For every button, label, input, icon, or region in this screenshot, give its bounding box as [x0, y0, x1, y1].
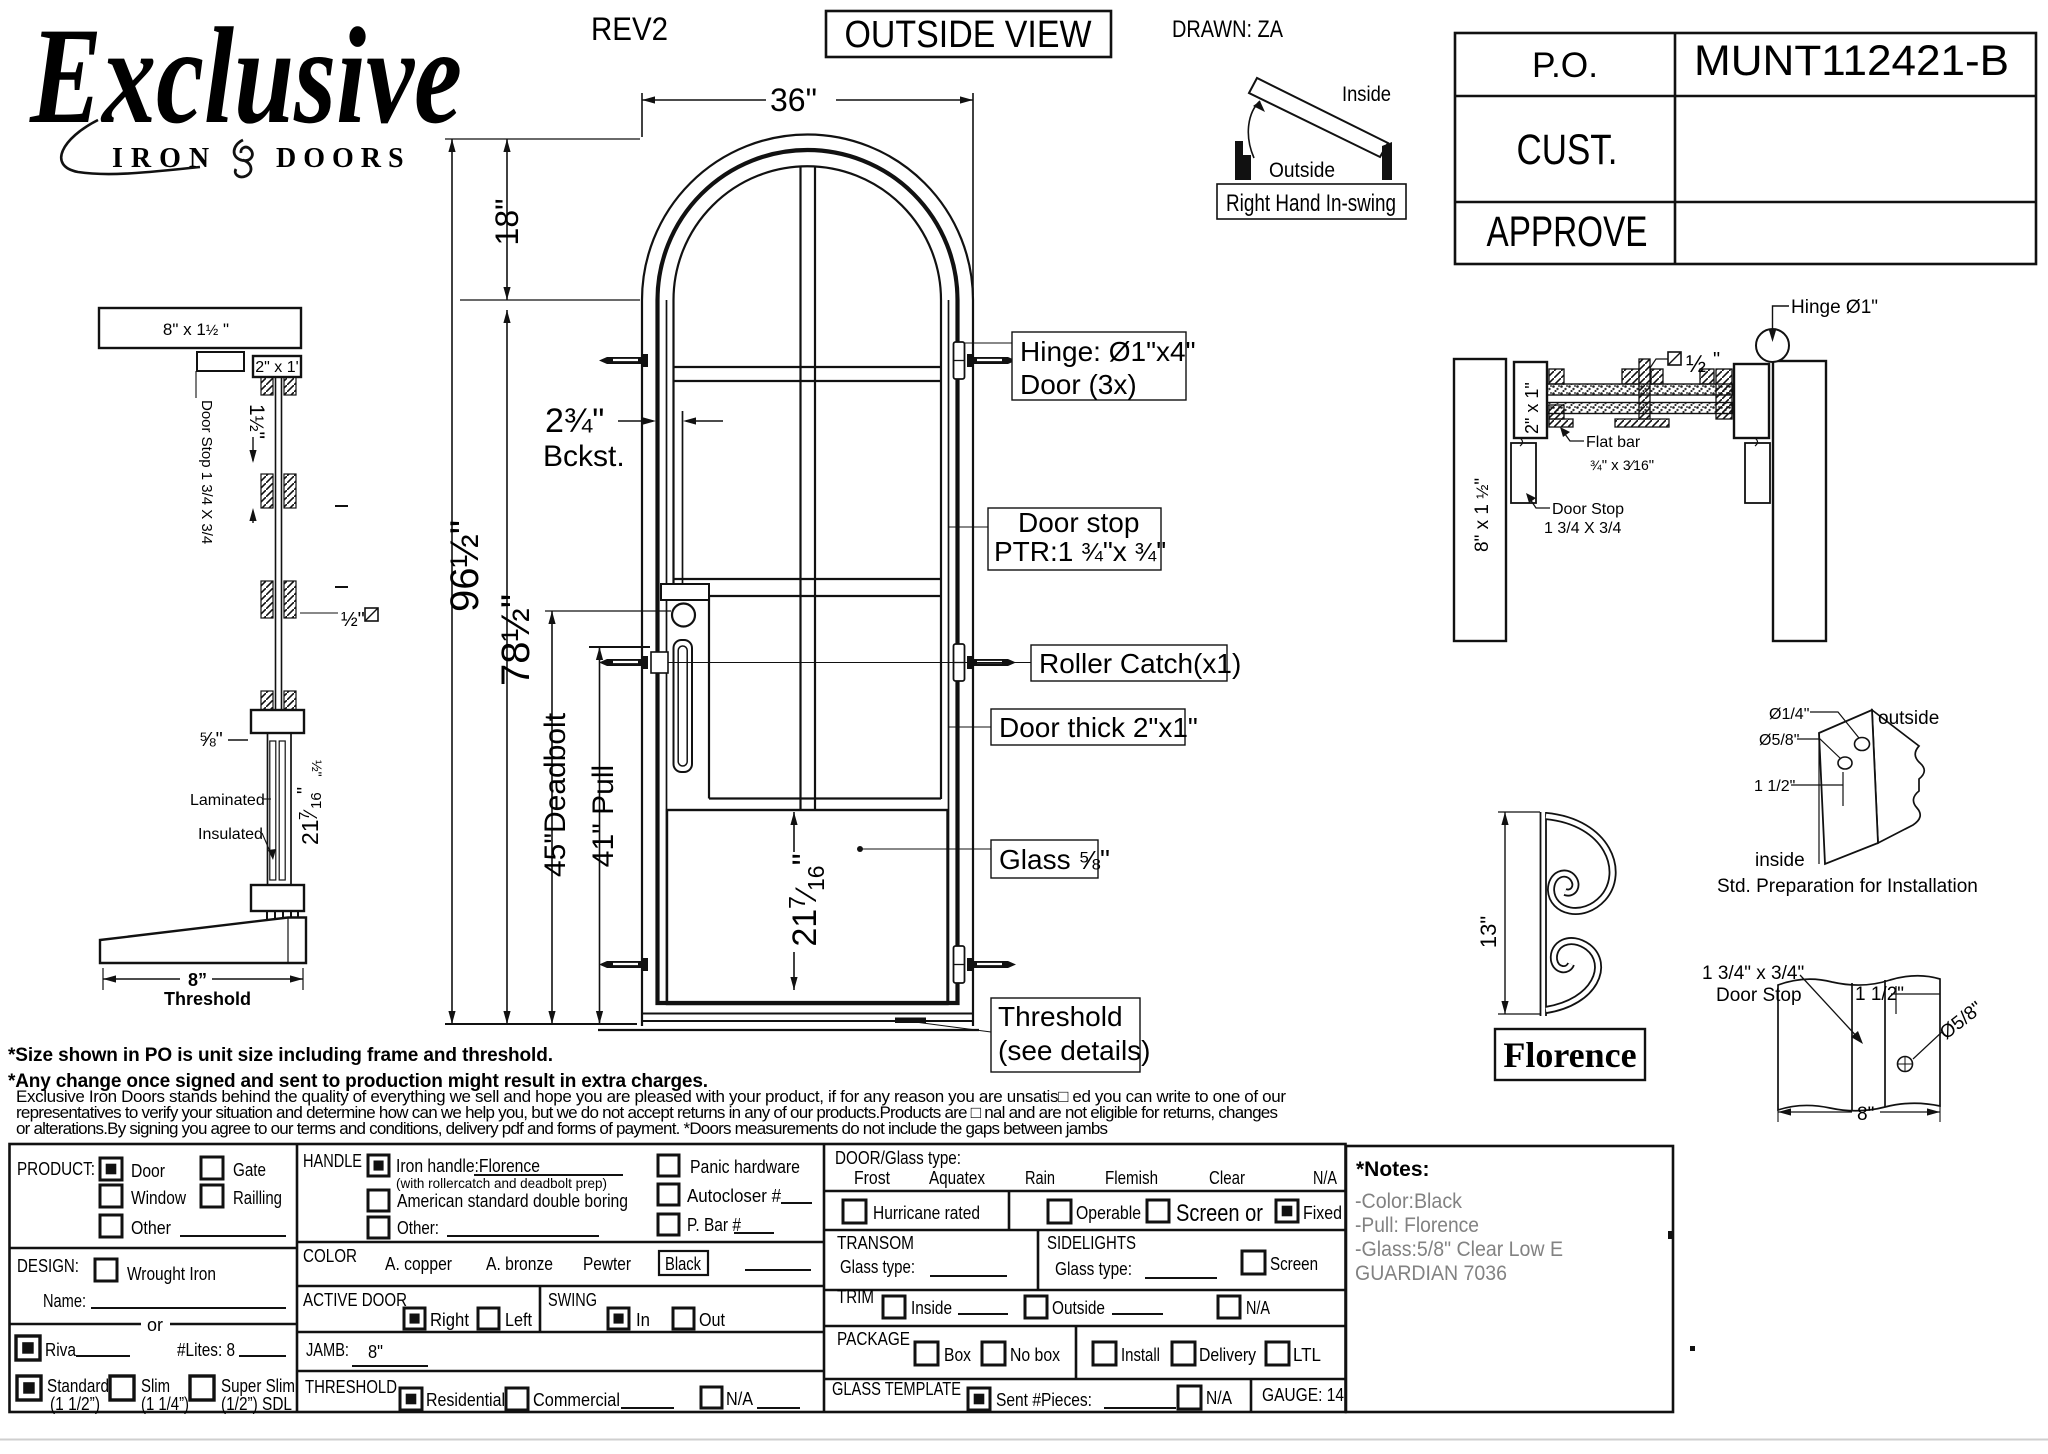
svg-text:Right Hand In-swing: Right Hand In-swing	[1226, 190, 1396, 217]
svg-text:Glass ⅝": Glass ⅝"	[999, 844, 1110, 875]
svg-text:2" x 1': 2" x 1'	[255, 359, 298, 376]
svg-text:APPROVE: APPROVE	[1487, 208, 1648, 256]
svg-text:PACKAGE: PACKAGE	[837, 1329, 910, 1349]
svg-text:Out: Out	[699, 1310, 725, 1330]
svg-text:Frost: Frost	[854, 1168, 890, 1188]
svg-text:American standard double borin: American standard double boring	[397, 1191, 628, 1211]
svg-text:Residential: Residential	[426, 1390, 505, 1410]
svg-text:1 3/4 X 3/4: 1 3/4 X 3/4	[1544, 520, 1621, 537]
svg-text:": "	[294, 787, 316, 794]
svg-text:Other: Other	[131, 1218, 171, 1238]
svg-text:Rain: Rain	[1025, 1168, 1055, 1188]
svg-text:A. copper: A. copper	[385, 1254, 452, 1274]
svg-text:P. Bar #: P. Bar #	[687, 1215, 741, 1235]
svg-text:2" x 1": 2" x 1"	[1522, 382, 1542, 434]
svg-text:⅝": ⅝"	[199, 729, 223, 751]
svg-text:Door Stop 1 3/4 X 3/4: Door Stop 1 3/4 X 3/4	[198, 400, 215, 544]
svg-text:Flat bar: Flat bar	[1586, 434, 1641, 451]
svg-text:Slim: Slim	[141, 1376, 170, 1396]
svg-text:Glass type:: Glass type:	[840, 1257, 915, 1277]
svg-text:(1 1/4”): (1 1/4”)	[141, 1394, 189, 1414]
svg-text:Threshold: Threshold	[164, 989, 251, 1009]
svg-text:¾" x 3⁄16": ¾" x 3⁄16"	[1590, 457, 1654, 474]
svg-text:IRON: IRON	[112, 143, 217, 174]
svg-text:Threshold: Threshold	[998, 1001, 1123, 1032]
svg-text:Inside: Inside	[911, 1298, 952, 1318]
svg-text:PRODUCT:: PRODUCT:	[17, 1159, 95, 1179]
svg-text:COLOR: COLOR	[303, 1246, 357, 1266]
svg-text:Standard: Standard	[47, 1376, 109, 1396]
svg-text:Ø5/8": Ø5/8"	[1759, 732, 1799, 749]
svg-text:or alterations.By signing you: or alterations.By signing you agree to o…	[16, 1119, 1108, 1138]
svg-text:Wrought Iron: Wrought Iron	[127, 1264, 216, 1284]
svg-text:SIDELIGHTS: SIDELIGHTS	[1047, 1233, 1136, 1253]
svg-text:REV2: REV2	[591, 11, 668, 47]
svg-text:-Pull: Florence: -Pull: Florence	[1355, 1214, 1479, 1237]
svg-text:Iron handle:Florence: Iron handle:Florence	[396, 1156, 540, 1176]
svg-text:#Lites: 8: #Lites: 8	[177, 1340, 235, 1360]
svg-text:*Size shown in PO is unit size: *Size shown in PO is unit size including…	[8, 1045, 553, 1066]
svg-text:MUNT112421-B: MUNT112421-B	[1694, 37, 2009, 85]
svg-text:N/A: N/A	[1246, 1298, 1270, 1318]
svg-text:Install: Install	[1121, 1345, 1160, 1365]
svg-text:Inside: Inside	[1342, 83, 1391, 106]
svg-text:Roller Catch(x1): Roller Catch(x1)	[1039, 648, 1241, 679]
svg-text:Black: Black	[665, 1254, 702, 1274]
svg-text:*Notes:: *Notes:	[1356, 1158, 1430, 1181]
svg-text:Hurricane rated: Hurricane rated	[873, 1203, 980, 1223]
svg-text:36": 36"	[770, 82, 817, 118]
svg-text:Name:: Name:	[43, 1291, 86, 1311]
svg-text:45"Deadbolt: 45"Deadbolt	[539, 712, 572, 877]
svg-text:No box: No box	[1010, 1345, 1060, 1365]
svg-text:Screen or: Screen or	[1176, 1200, 1263, 1227]
svg-text:Operable: Operable	[1076, 1203, 1141, 1223]
svg-text:Box: Box	[944, 1345, 971, 1365]
svg-text:½": ½"	[341, 609, 365, 631]
svg-text:Sent #Pieces:: Sent #Pieces:	[996, 1390, 1092, 1410]
svg-text:½: ½	[1686, 351, 1706, 378]
svg-text:1½": 1½"	[245, 404, 268, 439]
svg-text:1 3/4" x 3/4": 1 3/4" x 3/4"	[1702, 963, 1804, 984]
svg-text:LTL: LTL	[1293, 1345, 1321, 1365]
svg-text:Commercial: Commercial	[533, 1390, 620, 1410]
svg-text:(1 1/2”): (1 1/2”)	[50, 1394, 100, 1414]
svg-text:Door thick 2"x1": Door thick 2"x1"	[999, 712, 1198, 743]
svg-text:N/A: N/A	[726, 1389, 753, 1409]
svg-text:Laminated: Laminated	[190, 792, 265, 809]
svg-text:Screen: Screen	[1270, 1254, 1318, 1274]
svg-text:Window: Window	[131, 1188, 187, 1208]
svg-text:Railling: Railling	[233, 1188, 282, 1208]
svg-text:JAMB:: JAMB:	[306, 1340, 349, 1360]
svg-text:2¾": 2¾"	[545, 402, 604, 440]
svg-text:Flemish: Flemish	[1105, 1168, 1158, 1188]
svg-text:Std. Preparation for Installat: Std. Preparation for Installation	[1717, 876, 1978, 897]
svg-text:Florence: Florence	[1503, 1035, 1636, 1075]
svg-text:8": 8"	[368, 1342, 383, 1362]
svg-text:N/A: N/A	[1206, 1388, 1232, 1408]
svg-text:DOORS: DOORS	[276, 143, 411, 174]
svg-text:or: or	[147, 1315, 163, 1335]
svg-text:DOOR/Glass type:: DOOR/Glass type:	[835, 1148, 961, 1168]
svg-text:TRANSOM: TRANSOM	[837, 1233, 914, 1253]
svg-text:Outside: Outside	[1269, 159, 1335, 182]
svg-text:Riva: Riva	[45, 1340, 77, 1360]
svg-text:18": 18"	[489, 199, 525, 246]
svg-text:outside: outside	[1878, 708, 1939, 729]
svg-text:8" x 1½ ": 8" x 1½ "	[163, 320, 229, 339]
svg-text:Panic hardware: Panic hardware	[690, 1157, 800, 1177]
svg-text:ACTIVE DOOR: ACTIVE DOOR	[303, 1290, 407, 1310]
svg-text:Door stop: Door stop	[1018, 507, 1139, 538]
svg-text:OUTSIDE VIEW: OUTSIDE VIEW	[845, 14, 1092, 56]
svg-text:Aquatex: Aquatex	[929, 1168, 985, 1188]
svg-text:8": 8"	[1857, 1104, 1874, 1125]
svg-text:8" x 1 ½": 8" x 1 ½"	[1472, 478, 1493, 552]
svg-text:Clear: Clear	[1209, 1168, 1245, 1188]
svg-text:Pewter: Pewter	[583, 1254, 631, 1274]
svg-text:Hinge: Ø1"x4": Hinge: Ø1"x4"	[1020, 336, 1196, 367]
svg-text:": "	[1713, 349, 1720, 371]
svg-text:N/A: N/A	[1313, 1168, 1337, 1188]
svg-text:THRESHOLD: THRESHOLD	[305, 1377, 397, 1397]
svg-text:TRIM: TRIM	[837, 1287, 874, 1307]
svg-text:Ø1/4": Ø1/4"	[1769, 706, 1809, 723]
svg-text:½": ½"	[309, 760, 325, 777]
svg-text:41" Pull: 41" Pull	[587, 765, 620, 867]
svg-text:Delivery: Delivery	[1199, 1345, 1256, 1365]
svg-text:Autocloser #: Autocloser #	[687, 1186, 781, 1206]
svg-text:21: 21	[297, 819, 323, 845]
svg-text:A. bronze: A. bronze	[486, 1254, 553, 1274]
svg-text:Glass type:: Glass type:	[1055, 1259, 1132, 1279]
svg-text:Insulated: Insulated	[198, 826, 263, 843]
svg-text:96½": 96½"	[443, 520, 487, 612]
svg-text:DRAWN: ZA: DRAWN: ZA	[1172, 16, 1283, 43]
svg-text:GUARDIAN 7036: GUARDIAN 7036	[1355, 1262, 1507, 1285]
svg-text:PTR:1 ¾"x ¾": PTR:1 ¾"x ¾"	[994, 536, 1166, 567]
svg-text:(with rollercatch and deadbolt: (with rollercatch and deadbolt prep)	[396, 1175, 607, 1191]
svg-text:(see details): (see details)	[998, 1035, 1151, 1066]
svg-text:inside: inside	[1755, 850, 1805, 871]
svg-text:Door Stop: Door Stop	[1716, 985, 1802, 1006]
svg-text:78½": 78½"	[494, 594, 538, 686]
svg-text:P.O.: P.O.	[1532, 46, 1598, 85]
svg-text:Other:: Other:	[397, 1218, 439, 1238]
svg-text:In: In	[636, 1310, 650, 1330]
svg-text:1 1/2": 1 1/2"	[1754, 778, 1795, 795]
svg-text:Hinge Ø1": Hinge Ø1"	[1791, 297, 1878, 318]
svg-text:-Color:Black: -Color:Black	[1355, 1190, 1462, 1213]
svg-text:Gate: Gate	[233, 1160, 266, 1180]
svg-text:Door (3x): Door (3x)	[1020, 369, 1137, 400]
svg-text:(1/2”) SDL: (1/2”) SDL	[221, 1394, 292, 1414]
svg-text:Door Stop: Door Stop	[1552, 501, 1624, 518]
svg-text:GAUGE: 14: GAUGE: 14	[1262, 1385, 1344, 1405]
svg-text:Fixed: Fixed	[1303, 1203, 1342, 1223]
svg-text:CUST.: CUST.	[1517, 126, 1618, 174]
svg-text:SWING: SWING	[548, 1290, 597, 1310]
svg-text:Super Slim: Super Slim	[221, 1376, 295, 1396]
svg-text:GLASS TEMPLATE: GLASS TEMPLATE	[832, 1379, 961, 1399]
svg-text:Outside: Outside	[1052, 1298, 1105, 1318]
svg-text:DESIGN:: DESIGN:	[17, 1256, 79, 1276]
svg-text:Left: Left	[505, 1310, 532, 1330]
svg-text:Right: Right	[430, 1310, 469, 1330]
svg-text:13": 13"	[1476, 916, 1501, 948]
svg-text:HANDLE: HANDLE	[303, 1151, 362, 1171]
svg-text:Bckst.: Bckst.	[543, 440, 625, 473]
svg-text:-Glass:5/8" Clear Low E: -Glass:5/8" Clear Low E	[1355, 1238, 1563, 1261]
svg-text:Door: Door	[131, 1161, 165, 1181]
svg-text:Exclusive: Exclusive	[28, 0, 462, 152]
svg-text:8”: 8”	[188, 970, 207, 990]
